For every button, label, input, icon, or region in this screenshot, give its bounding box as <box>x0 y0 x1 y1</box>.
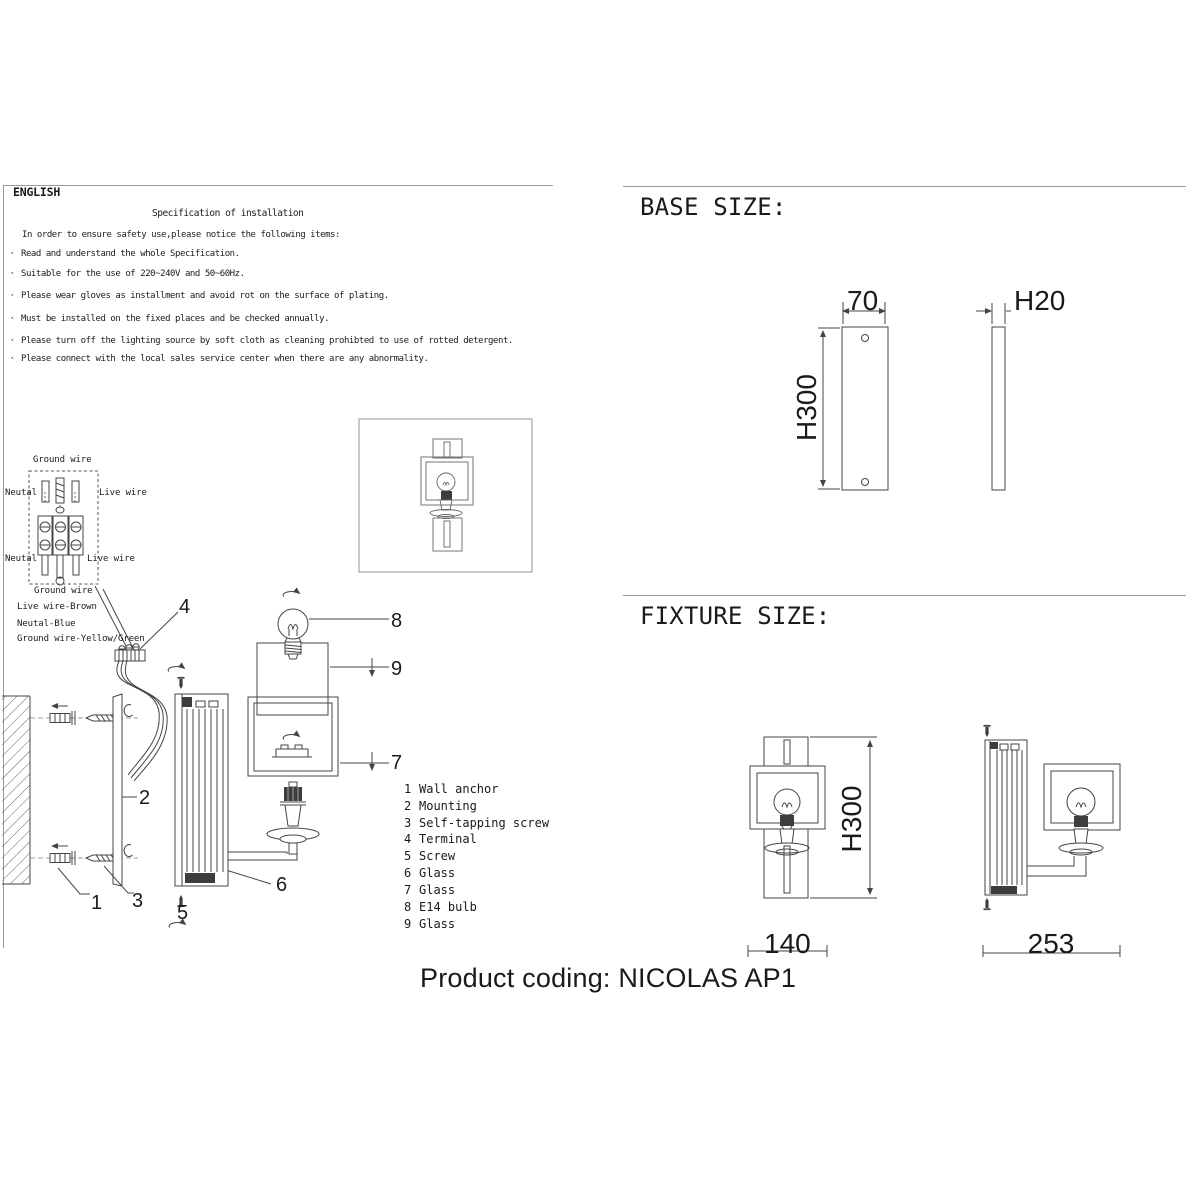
language-label: ENGLISH <box>13 186 60 199</box>
parts-list-item: 3 Self-tapping screw <box>404 816 549 830</box>
part-number: 2 <box>404 799 419 813</box>
bullet-dot: · <box>8 336 16 347</box>
bullet-dot: · <box>8 354 16 365</box>
terminal-block <box>115 644 145 661</box>
bulb <box>278 592 308 659</box>
parts-list-item: 7 Glass <box>404 883 455 897</box>
safety-item: · Please wear gloves as installment and … <box>8 291 389 302</box>
spec-intro: In order to ensure safety use,please not… <box>22 230 340 241</box>
safety-item-text: Must be installed on the fixed places an… <box>21 314 329 325</box>
part-name: E14 bulb <box>419 900 477 914</box>
fixture-size-title: FIXTURE SIZE: <box>640 601 830 631</box>
bullet-dot: · <box>8 269 16 280</box>
neutral-top-label: Neutal <box>5 488 37 499</box>
neutral-bottom-label: Neutal <box>5 554 37 565</box>
callout-3: 3 <box>132 891 143 911</box>
parts-list-item: 4 Terminal <box>404 832 477 846</box>
callout-7: 7 <box>391 753 402 773</box>
part-number: 4 <box>404 832 419 846</box>
fixture-side-view <box>983 726 1120 957</box>
part-number: 1 <box>404 782 419 796</box>
part-name: Glass <box>419 917 455 931</box>
base-height-dim: H300 <box>792 377 822 441</box>
parts-list-item: 8 E14 bulb <box>404 900 477 914</box>
callout-4: 4 <box>179 597 190 617</box>
spec-title: Specification of installation <box>152 208 303 220</box>
base-size-title: BASE SIZE: <box>640 192 787 222</box>
part-number: 5 <box>404 849 419 863</box>
product-coding: Product coding: NICOLAS AP1 <box>420 962 796 994</box>
part-number: 7 <box>404 883 419 897</box>
socket-arm-assembly <box>228 782 319 860</box>
bullet-dot: · <box>8 291 16 302</box>
fixture-width-dim: 140 <box>764 929 810 959</box>
glass-panel <box>168 667 228 928</box>
safety-item-text: Please wear gloves as installment and av… <box>21 291 389 302</box>
part-number: 9 <box>404 917 419 931</box>
ground-wire-top-label: Ground wire <box>33 455 92 466</box>
part-number: 8 <box>404 900 419 914</box>
wire-color-legend-ground: Ground wire-Yellow/Green <box>17 634 145 645</box>
shade-middle <box>248 697 338 776</box>
assembled-inset <box>359 419 532 572</box>
base-size-drawing <box>818 302 1011 490</box>
part-name: Wall anchor <box>419 782 498 796</box>
parts-list-item: 5 Screw <box>404 849 455 863</box>
installation-spec-sheet: ENGLISH Specification of installation In… <box>0 0 1200 1200</box>
part-name: Mounting <box>419 799 477 813</box>
part-name: Glass <box>419 883 455 897</box>
safety-item-text: Please turn off the lighting source by s… <box>21 336 513 347</box>
callout-1: 1 <box>91 893 102 913</box>
part-name: Self-tapping screw <box>419 816 549 830</box>
fixture-height-dim: H300 <box>837 785 867 853</box>
part-name: Screw <box>419 849 455 863</box>
wire-color-legend-live: Live wire-Brown <box>17 602 97 613</box>
safety-item: · Read and understand the whole Specific… <box>8 249 240 260</box>
callout-8: 8 <box>391 611 402 631</box>
live-bottom-label: Live wire <box>87 554 135 565</box>
base-depth-dim: H20 <box>1014 286 1065 316</box>
ground-wire-bottom-label: Ground wire <box>34 586 93 597</box>
safety-item-text: Please connect with the local sales serv… <box>21 354 428 365</box>
fixture-depth-dim: 253 <box>1027 929 1075 959</box>
parts-list-item: 6 Glass <box>404 866 455 880</box>
part-name: Terminal <box>419 832 477 846</box>
base-width-dim: 70 <box>847 286 878 316</box>
safety-item: · Please connect with the local sales se… <box>8 354 428 365</box>
wires <box>117 661 167 781</box>
safety-item: · Please turn off the lighting source by… <box>8 336 513 347</box>
wall <box>2 696 30 884</box>
wire-color-legend-neutral: Neutal-Blue <box>17 619 76 630</box>
part-name: Glass <box>419 866 455 880</box>
mounting-plate <box>113 694 122 886</box>
callout-9: 9 <box>391 659 402 679</box>
parts-list-item: 1 Wall anchor <box>404 782 498 796</box>
callout-5: 5 <box>177 903 188 923</box>
parts-list-item: 2 Mounting <box>404 799 477 813</box>
callout-2: 2 <box>139 788 150 808</box>
part-number: 6 <box>404 866 419 880</box>
safety-item-text: Read and understand the whole Specificat… <box>21 249 240 260</box>
safety-item-text: Suitable for the use of 220~240V and 50~… <box>21 269 245 280</box>
safety-item: · Must be installed on the fixed places … <box>8 314 329 325</box>
wiring-schematic <box>29 471 98 585</box>
live-top-label: Live wire <box>99 488 147 499</box>
part-number: 3 <box>404 816 419 830</box>
callout-6: 6 <box>276 875 287 895</box>
safety-item: · Suitable for the use of 220~240V and 5… <box>8 269 245 280</box>
bullet-dot: · <box>8 249 16 260</box>
parts-list-item: 9 Glass <box>404 917 455 931</box>
bullet-dot: · <box>8 314 16 325</box>
